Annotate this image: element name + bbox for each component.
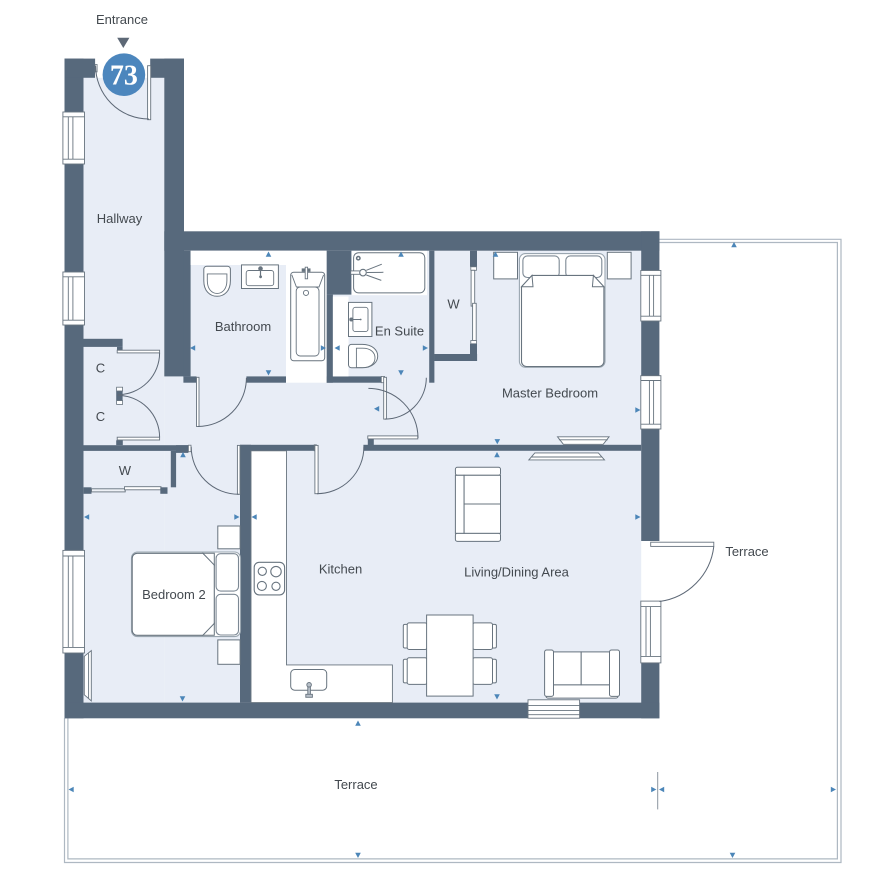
svg-text:Terrace: Terrace [334, 777, 377, 792]
svg-text:73: 73 [110, 61, 138, 92]
svg-text:W: W [447, 297, 460, 312]
svg-text:Living/Dining Area: Living/Dining Area [464, 564, 570, 579]
svg-text:Bedroom 2: Bedroom 2 [142, 587, 206, 602]
svg-text:C: C [96, 361, 105, 376]
svg-text:En Suite: En Suite [375, 324, 424, 339]
svg-text:Kitchen: Kitchen [319, 561, 362, 576]
svg-text:Entrance: Entrance [96, 12, 148, 27]
svg-text:Master Bedroom: Master Bedroom [502, 386, 598, 401]
svg-text:Terrace: Terrace [725, 544, 768, 559]
svg-text:Bathroom: Bathroom [215, 319, 271, 334]
svg-text:W: W [119, 463, 132, 478]
svg-text:C: C [96, 409, 105, 424]
svg-text:Hallway: Hallway [97, 211, 143, 226]
